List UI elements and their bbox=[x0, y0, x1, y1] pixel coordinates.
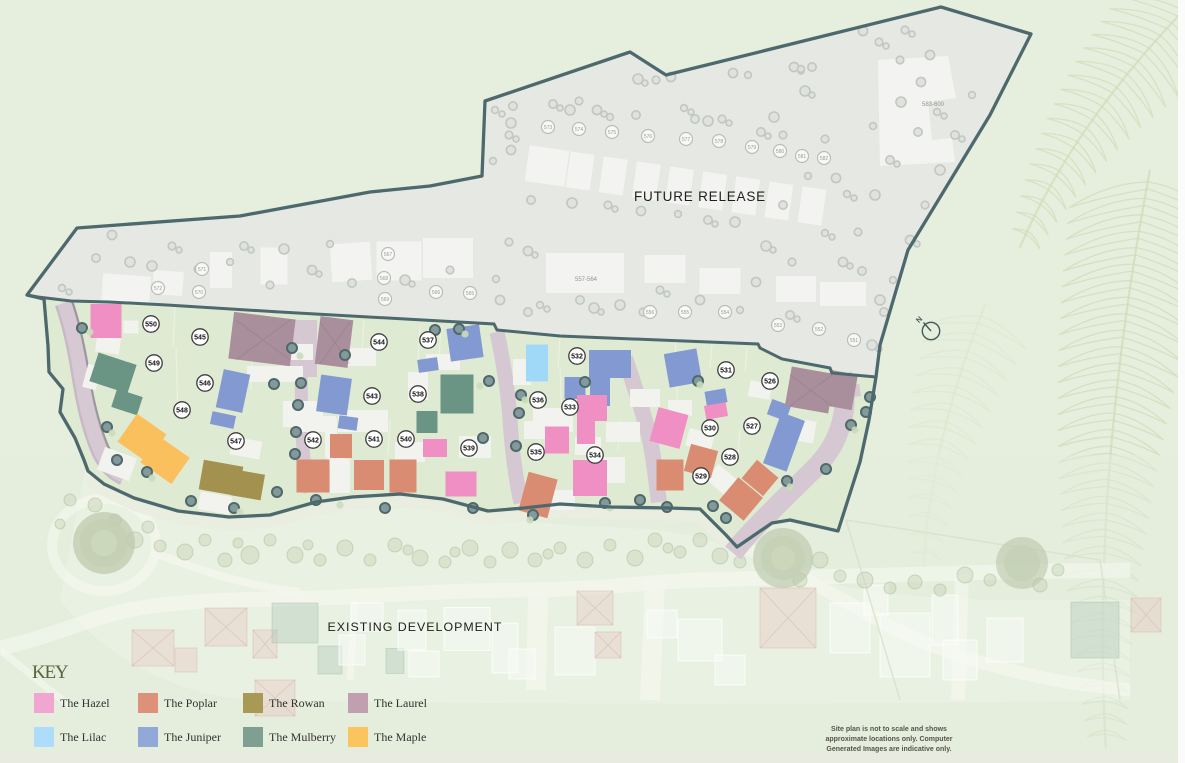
svg-text:FUTURE RELEASE: FUTURE RELEASE bbox=[634, 189, 766, 204]
svg-text:531: 531 bbox=[720, 368, 732, 375]
svg-text:554: 554 bbox=[721, 310, 730, 316]
svg-text:583-600: 583-600 bbox=[922, 102, 945, 108]
svg-text:553: 553 bbox=[774, 323, 783, 329]
svg-text:573: 573 bbox=[544, 125, 553, 131]
svg-text:The Lilac: The Lilac bbox=[60, 730, 106, 744]
svg-text:574: 574 bbox=[575, 127, 584, 133]
svg-text:572: 572 bbox=[154, 286, 163, 292]
svg-text:557-564: 557-564 bbox=[575, 277, 598, 283]
svg-text:568: 568 bbox=[380, 276, 389, 282]
svg-text:546: 546 bbox=[199, 381, 211, 388]
svg-text:538: 538 bbox=[412, 392, 424, 399]
svg-text:582: 582 bbox=[820, 156, 829, 162]
svg-text:The Hazel: The Hazel bbox=[60, 696, 110, 710]
svg-text:555: 555 bbox=[681, 310, 690, 316]
svg-text:539: 539 bbox=[463, 446, 475, 453]
svg-text:The Rowan: The Rowan bbox=[269, 696, 325, 710]
svg-text:The Poplar: The Poplar bbox=[164, 696, 217, 710]
svg-text:581: 581 bbox=[798, 154, 807, 160]
svg-text:552: 552 bbox=[815, 327, 824, 333]
svg-text:approximate locations only. Co: approximate locations only. Computer bbox=[825, 736, 952, 743]
svg-text:549: 549 bbox=[148, 361, 160, 368]
svg-text:537: 537 bbox=[422, 338, 434, 345]
svg-text:570: 570 bbox=[195, 290, 204, 296]
svg-text:526: 526 bbox=[764, 379, 776, 386]
svg-text:578: 578 bbox=[715, 139, 724, 145]
svg-text:569: 569 bbox=[381, 297, 390, 303]
svg-text:543: 543 bbox=[366, 394, 378, 401]
svg-text:566: 566 bbox=[432, 290, 441, 296]
svg-text:575: 575 bbox=[608, 130, 617, 136]
svg-text:545: 545 bbox=[194, 335, 206, 342]
svg-text:540: 540 bbox=[400, 437, 412, 444]
svg-text:550: 550 bbox=[145, 322, 157, 329]
svg-text:529: 529 bbox=[695, 474, 707, 481]
svg-text:The Juniper: The Juniper bbox=[164, 730, 221, 744]
svg-text:577: 577 bbox=[682, 137, 691, 143]
svg-text:567: 567 bbox=[384, 252, 393, 258]
svg-text:533: 533 bbox=[564, 405, 576, 412]
svg-text:556: 556 bbox=[646, 310, 655, 316]
svg-text:542: 542 bbox=[307, 438, 319, 445]
svg-text:565: 565 bbox=[466, 291, 475, 297]
svg-text:EXISTING DEVELOPMENT: EXISTING DEVELOPMENT bbox=[328, 620, 503, 634]
svg-text:576: 576 bbox=[644, 134, 653, 140]
svg-text:527: 527 bbox=[746, 424, 758, 431]
svg-text:544: 544 bbox=[373, 340, 385, 347]
svg-text:541: 541 bbox=[368, 437, 380, 444]
svg-text:534: 534 bbox=[589, 453, 601, 460]
svg-text:Generated Images are indicativ: Generated Images are indicative only. bbox=[826, 746, 951, 753]
svg-text:551: 551 bbox=[850, 338, 859, 344]
svg-text:The Maple: The Maple bbox=[374, 730, 426, 744]
svg-text:547: 547 bbox=[230, 439, 242, 446]
svg-text:Site plan is not to scale and: Site plan is not to scale and shows bbox=[831, 726, 947, 733]
svg-text:548: 548 bbox=[176, 408, 188, 415]
svg-text:535: 535 bbox=[530, 450, 542, 457]
svg-text:528: 528 bbox=[724, 455, 736, 462]
svg-text:580: 580 bbox=[776, 149, 785, 155]
svg-text:532: 532 bbox=[571, 354, 583, 361]
svg-text:The Laurel: The Laurel bbox=[374, 696, 428, 710]
svg-text:The Mulberry: The Mulberry bbox=[269, 730, 336, 744]
svg-text:530: 530 bbox=[704, 426, 716, 433]
svg-text:536: 536 bbox=[532, 398, 544, 405]
svg-text:KEY: KEY bbox=[32, 662, 69, 683]
svg-text:579: 579 bbox=[748, 145, 757, 151]
svg-text:571: 571 bbox=[198, 267, 207, 273]
